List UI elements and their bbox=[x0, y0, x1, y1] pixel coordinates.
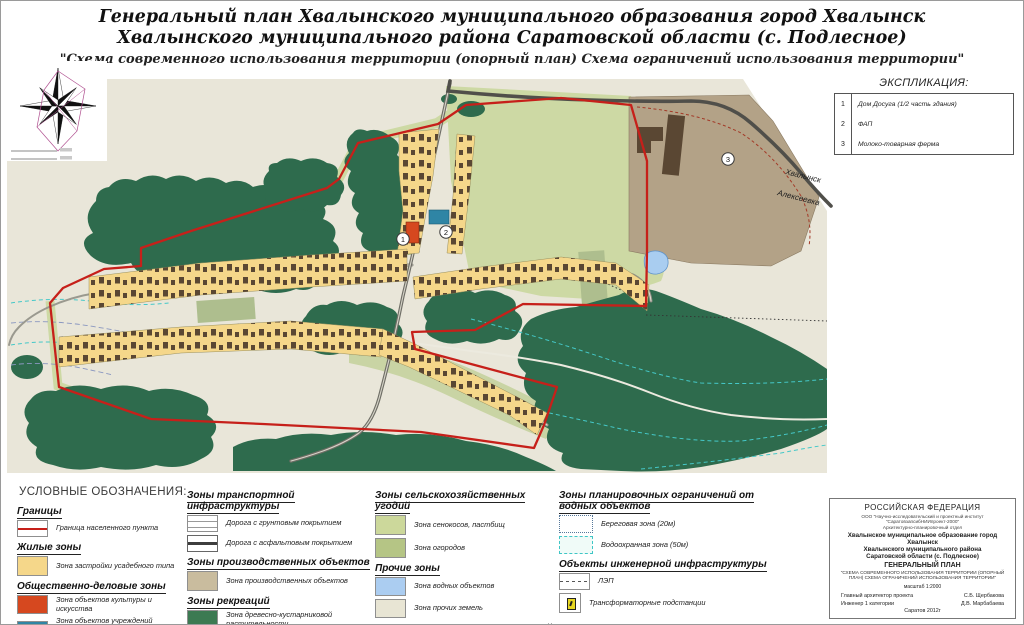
legend-item-label: Зона огородов bbox=[414, 544, 465, 553]
culture-swatch bbox=[17, 595, 48, 614]
marker-2: 2 bbox=[444, 228, 448, 237]
legend-group-title: Прочие зоны bbox=[375, 563, 557, 574]
legend-item: Зона объектов культуры и искусства bbox=[17, 595, 185, 614]
explication-row: 3 Молоко-товарная ферма bbox=[835, 134, 1013, 154]
stamp-country: РОССИЙСКАЯ ФЕДЕРАЦИЯ bbox=[835, 503, 1010, 512]
legend-column-3: Зоны сельскохозяйственных угодий Зона се… bbox=[375, 485, 557, 625]
legend-item: Зона объектов учреждений здравоохранения… bbox=[17, 617, 185, 625]
stamp-municipality-line3: Саратовской области (с. Подлесное) bbox=[835, 553, 1010, 560]
stamp-scale: масштаб 1:2000 bbox=[835, 584, 1010, 590]
explication-row-number: 3 bbox=[835, 134, 852, 154]
asphalt-road-swatch bbox=[187, 535, 218, 552]
stamp-department: Архитектурно-планировочный отдел bbox=[835, 525, 1010, 530]
stamp-role: Главный архитектор проекта bbox=[841, 593, 913, 599]
legend-group-title: Зоны рекреаций bbox=[187, 596, 373, 607]
legend-item-label: Зона объектов учреждений здравоохранения… bbox=[56, 617, 185, 625]
plan-sheet: Генеральный план Хвалынского муниципальн… bbox=[0, 0, 1024, 625]
garden-swatch bbox=[375, 538, 406, 558]
legend-column-1: Границы Граница населенного пункта Жилые… bbox=[17, 485, 185, 625]
legend-item: Зона прочих земель bbox=[375, 599, 557, 618]
legend-item-label: Дорога с асфальтовым покрытием bbox=[226, 539, 352, 548]
legend-item: Береговая зона (20м) bbox=[559, 515, 793, 533]
legend-item-label: ЛЭП bbox=[598, 577, 614, 586]
dirt-road-swatch bbox=[187, 515, 218, 532]
legend-item: Зона производственных объектов bbox=[187, 571, 373, 591]
stamp-role: Инженер 1 категории bbox=[841, 601, 894, 607]
legend-item: Граница населенного пункта bbox=[17, 520, 185, 537]
legend-item-label: Водоохранная зона (50м) bbox=[601, 541, 688, 550]
legend-item: Зона древесно-кустарниковой растительнос… bbox=[187, 610, 373, 625]
marker-1: 1 bbox=[401, 235, 405, 244]
explication-panel: ЭКСПЛИКАЦИЯ: 1 Дом Досуга (1/2 часть зда… bbox=[834, 77, 1014, 155]
legend-item-label: Зона прочих земель bbox=[414, 604, 483, 613]
boundary-swatch bbox=[17, 520, 48, 537]
legend-item: Зона застройки усадебного типа bbox=[17, 556, 185, 576]
stamp-signature-row: Главный архитектор проекта С.Б. Щербаков… bbox=[835, 593, 1010, 599]
legend-item-label: Трансформаторные подстанции bbox=[589, 599, 705, 608]
legend-item: Трансформаторные подстанции bbox=[559, 593, 793, 613]
explication-row-number: 1 bbox=[835, 94, 852, 114]
other-land-swatch bbox=[375, 599, 406, 618]
legend-column-4: Зоны планировочных ограничений от водных… bbox=[559, 485, 793, 616]
transformer-swatch bbox=[559, 593, 581, 613]
stamp-footer: Саратов 2012г bbox=[835, 608, 1010, 614]
stamp-scheme-title: "СХЕМА СОВРЕМЕННОГО ИСПОЛЬЗОВАНИЯ ТЕРРИТ… bbox=[835, 570, 1010, 580]
stamp-organization: ООО "Научно-исследовательский и проектны… bbox=[835, 514, 1010, 524]
legend-group-title: Жилые зоны bbox=[17, 542, 185, 553]
explication-row: 2 ФАП bbox=[835, 114, 1013, 134]
health-swatch bbox=[17, 621, 48, 625]
stamp-municipality-line1: Хвалынское муниципальное образование гор… bbox=[835, 532, 1010, 546]
legend-item-label: Зона объектов культуры и искусства bbox=[56, 596, 185, 614]
explication-row-label: Молоко-товарная ферма bbox=[852, 141, 939, 148]
title-block: РОССИЙСКАЯ ФЕДЕРАЦИЯ ООО "Научно-исследо… bbox=[829, 498, 1016, 619]
stamp-signature-row: Инженер 1 категории Д.В. Марбабаева bbox=[835, 601, 1010, 607]
legend-item-label: Береговая зона (20м) bbox=[601, 520, 676, 529]
explication-row-label: ФАП bbox=[852, 121, 872, 128]
stamp-document-title: ГЕНЕРАЛЬНЫЙ ПЛАН bbox=[835, 562, 1010, 569]
industrial-swatch bbox=[187, 571, 218, 591]
legend-group-title: Зоны сельскохозяйственных угодий bbox=[375, 490, 557, 512]
residential-swatch bbox=[17, 556, 48, 576]
legend-column-2: Зоны транспортной инфраструктуры Дорога … bbox=[187, 485, 373, 625]
water-protection-swatch bbox=[559, 536, 593, 554]
shore-zone-swatch bbox=[559, 515, 593, 533]
legend-group-title: Зоны транспортной инфраструктуры bbox=[187, 490, 373, 512]
legend-item-label: Зона водных объектов bbox=[414, 582, 494, 591]
explication-title: ЭКСПЛИКАЦИЯ: bbox=[834, 77, 1014, 89]
explication-row: 1 Дом Досуга (1/2 часть здания) bbox=[835, 94, 1013, 114]
legend-item-label: Зона производственных объектов bbox=[226, 577, 348, 586]
stamp-municipality-line2: Хвалынского муниципального района bbox=[835, 546, 1010, 553]
explication-row-number: 2 bbox=[835, 114, 852, 134]
marker-3: 3 bbox=[726, 155, 730, 164]
legend-item: Зона водных объектов bbox=[375, 577, 557, 596]
legend-item: ЛЭП bbox=[559, 573, 793, 590]
legend-item: Дорога с грунтовым покрытием bbox=[187, 515, 373, 532]
legend-item: Дорога с асфальтовым покрытием bbox=[187, 535, 373, 552]
pasture-swatch bbox=[375, 515, 406, 535]
legend-group-title: Общественно-деловые зоны bbox=[17, 581, 185, 592]
legend-group-title: Границы bbox=[17, 506, 185, 517]
legend-item: Водоохранная зона (50м) bbox=[559, 536, 793, 554]
legend-item: Зона огородов bbox=[375, 538, 557, 558]
legend-item: Зона сенокосов, пастбищ bbox=[375, 515, 557, 535]
forest-swatch bbox=[187, 610, 218, 625]
legend-item-label: Зона древесно-кустарниковой растительнос… bbox=[226, 611, 373, 625]
power-line-swatch bbox=[559, 573, 590, 590]
legend-group-title: Зоны производственных объектов bbox=[187, 557, 373, 568]
legend-item-label: Граница населенного пункта bbox=[56, 524, 158, 533]
explication-row-label: Дом Досуга (1/2 часть здания) bbox=[852, 101, 957, 108]
legend-item-label: Дорога с грунтовым покрытием bbox=[226, 519, 341, 528]
stamp-name: Д.В. Марбабаева bbox=[961, 601, 1004, 607]
health-building bbox=[429, 210, 449, 224]
legend-item-label: Зона застройки усадебного типа bbox=[56, 562, 174, 571]
stamp-name: С.Б. Щербакова bbox=[964, 593, 1004, 599]
legend-group-title: Зоны планировочных ограничений от водных… bbox=[559, 490, 793, 512]
legend-group-title: Объекты инженерной инфраструктуры bbox=[559, 559, 793, 570]
water-swatch bbox=[375, 577, 406, 596]
explication-table: 1 Дом Досуга (1/2 часть здания) 2 ФАП 3 … bbox=[834, 93, 1014, 155]
legend-item-label: Зона сенокосов, пастбищ bbox=[414, 521, 505, 530]
